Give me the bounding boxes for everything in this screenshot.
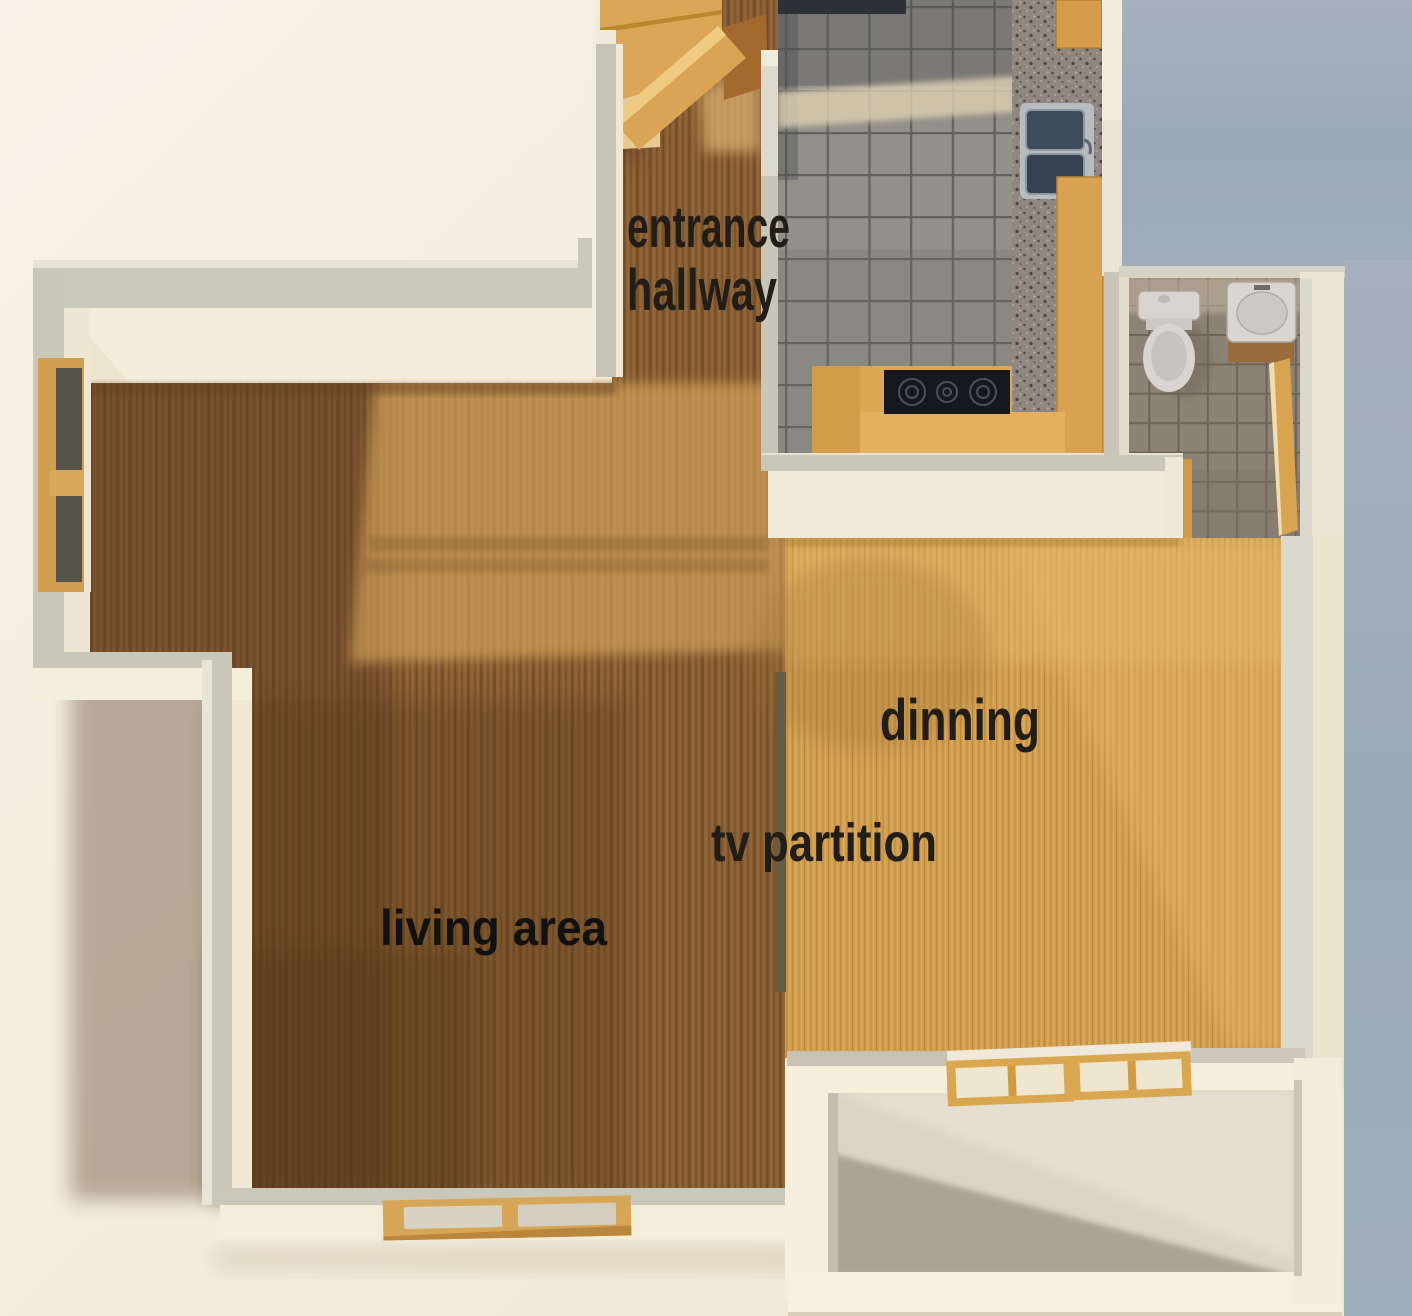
svg-text:dinning: dinning [880,688,1040,753]
svg-text:living area: living area [380,900,608,956]
svg-text:entrance: entrance [627,195,790,260]
svg-text:hallway: hallway [627,258,777,323]
svg-text:tv partition: tv partition [711,813,937,873]
